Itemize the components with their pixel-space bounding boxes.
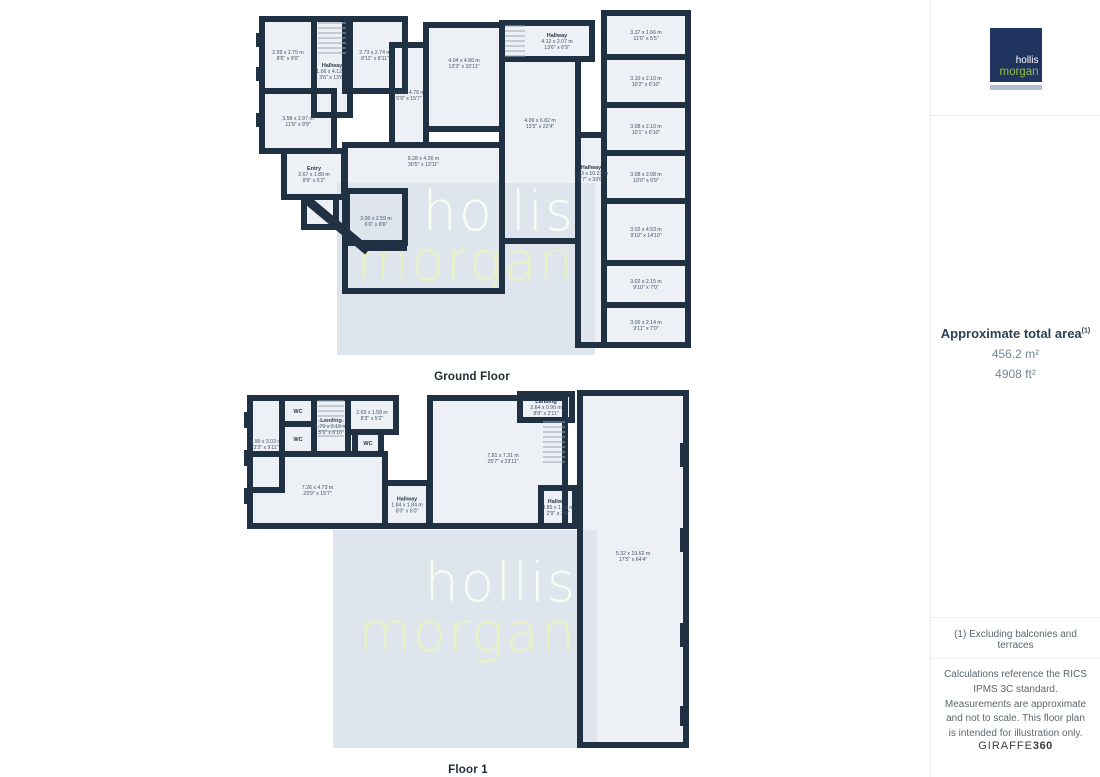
room-label: 2.00 x 2.59 m6'6" x 8'6" <box>360 216 391 228</box>
room-label: 3.06 x 2.14 m9'11" x 7'0" <box>630 320 661 332</box>
room-label: 9.28 x 4.26 m30'5" x 13'11" <box>408 156 439 168</box>
logo-square: hollis morgan <box>990 28 1042 82</box>
room <box>580 393 686 745</box>
room-label: 0.99 x 3.03 m3'3" x 9'11" <box>250 439 281 451</box>
room <box>502 59 578 241</box>
area-m2: 456.2 m² <box>931 347 1100 361</box>
room-label: Hallway1.84 x 1.84 m6'0" x 6'0" <box>391 496 422 514</box>
floorplan-page: hollismorgan2.59 x 2.75 m8'6" x 9'0"Hall… <box>0 0 1100 777</box>
room-label: WC <box>293 437 302 443</box>
disclaimer: Calculations reference the RICS IPMS 3C … <box>944 668 1087 742</box>
room-label: 7.81 x 7.31 m25'7" x 23'11" <box>487 453 518 465</box>
floor-1-plan: hollismorgan0.99 x 3.03 m3'3" x 9'11"WCW… <box>243 388 693 776</box>
logo-hollis-text: hollis <box>1016 56 1039 67</box>
giraffe360-brand: GIRAFFE360 <box>931 740 1100 752</box>
room-label: 4.09 x 6.82 m13'5" x 22'4" <box>524 118 555 130</box>
room-label: 3.37 x 1.66 m11'0" x 5'5" <box>630 30 661 42</box>
room-label: Entry2.67 x 1.89 m8'9" x 6'2" <box>298 166 329 184</box>
room <box>426 25 502 129</box>
room-label: WC <box>363 441 372 447</box>
stairs-icon <box>318 23 346 53</box>
giraffe-360-text: 360 <box>1033 740 1053 752</box>
area-footnote-marker: (1) <box>1082 328 1091 335</box>
room-label: 4.04 x 4.86 m13'3" x 15'11" <box>448 58 479 70</box>
sidebar-divider <box>931 115 1100 116</box>
room-label: 3.10 x 2.10 m10'2" x 6'10" <box>630 76 661 88</box>
sidebar-divider <box>931 658 1100 659</box>
total-area-block: Approximate total area(1) 456.2 m² 4908 … <box>931 326 1100 381</box>
room-label: 2.73 x 2.74 m8'11" x 8'11" <box>359 50 390 62</box>
room-label: 1.75 x 4.76 m5'9" x 15'7" <box>393 90 424 102</box>
room-label: 3.58 x 2.97 m11'9" x 9'9" <box>282 116 313 128</box>
giraffe-text: GIRAFFE <box>978 740 1033 752</box>
room-label: 3.02 x 4.53 m9'10" x 14'10" <box>630 227 662 239</box>
sidebar: hollis morgan Approximate total area(1) … <box>930 0 1100 777</box>
room-label: Hallway4.12 x 2.07 m13'6" x 6'9" <box>541 33 572 51</box>
room-label: 3.08 x 2.08 m10'0" x 6'9" <box>630 172 661 184</box>
room-label: Landing2.64 x 0.90 m8'8" x 2'11" <box>530 399 561 417</box>
room-label: 5.32 x 19.62 m17'5" x 64'4" <box>616 551 650 563</box>
logo-underline <box>990 85 1042 90</box>
floor-label: Ground Floor <box>252 371 692 383</box>
stairs-icon <box>543 422 565 462</box>
footnote: (1) Excluding balconies and terraces <box>937 629 1094 651</box>
hollis-morgan-logo: hollis morgan <box>990 28 1042 90</box>
sidebar-divider <box>931 617 1100 618</box>
ground-floor-plan: hollismorgan2.59 x 2.75 m8'6" x 9'0"Hall… <box>252 5 692 383</box>
area-title: Approximate total area(1) <box>931 326 1100 341</box>
floor-label: Floor 1 <box>243 764 693 776</box>
stairs-icon <box>505 26 525 56</box>
room-label: 2.53 x 1.58 m8'3" x 5'2" <box>356 410 387 422</box>
room-label: 3.02 x 2.15 m9'10" x 7'0" <box>630 279 661 291</box>
room-label: 2.59 x 2.75 m8'6" x 9'0" <box>272 50 303 62</box>
room-label: 7.26 x 4.73 m23'9" x 15'7" <box>302 485 333 497</box>
room-label: 3.08 x 2.10 m10'1" x 6'10" <box>630 124 661 136</box>
room-label: WC <box>293 409 302 415</box>
room-label: Hallway0.85 x 1.04 m2'9" x 3'5" <box>542 499 573 517</box>
room-label: Landing1.76 x 2.10 m5'9" x 6'10" <box>315 418 346 436</box>
logo-morgan-text: morgan <box>1000 67 1039 79</box>
area-ft2: 4908 ft² <box>931 367 1100 381</box>
